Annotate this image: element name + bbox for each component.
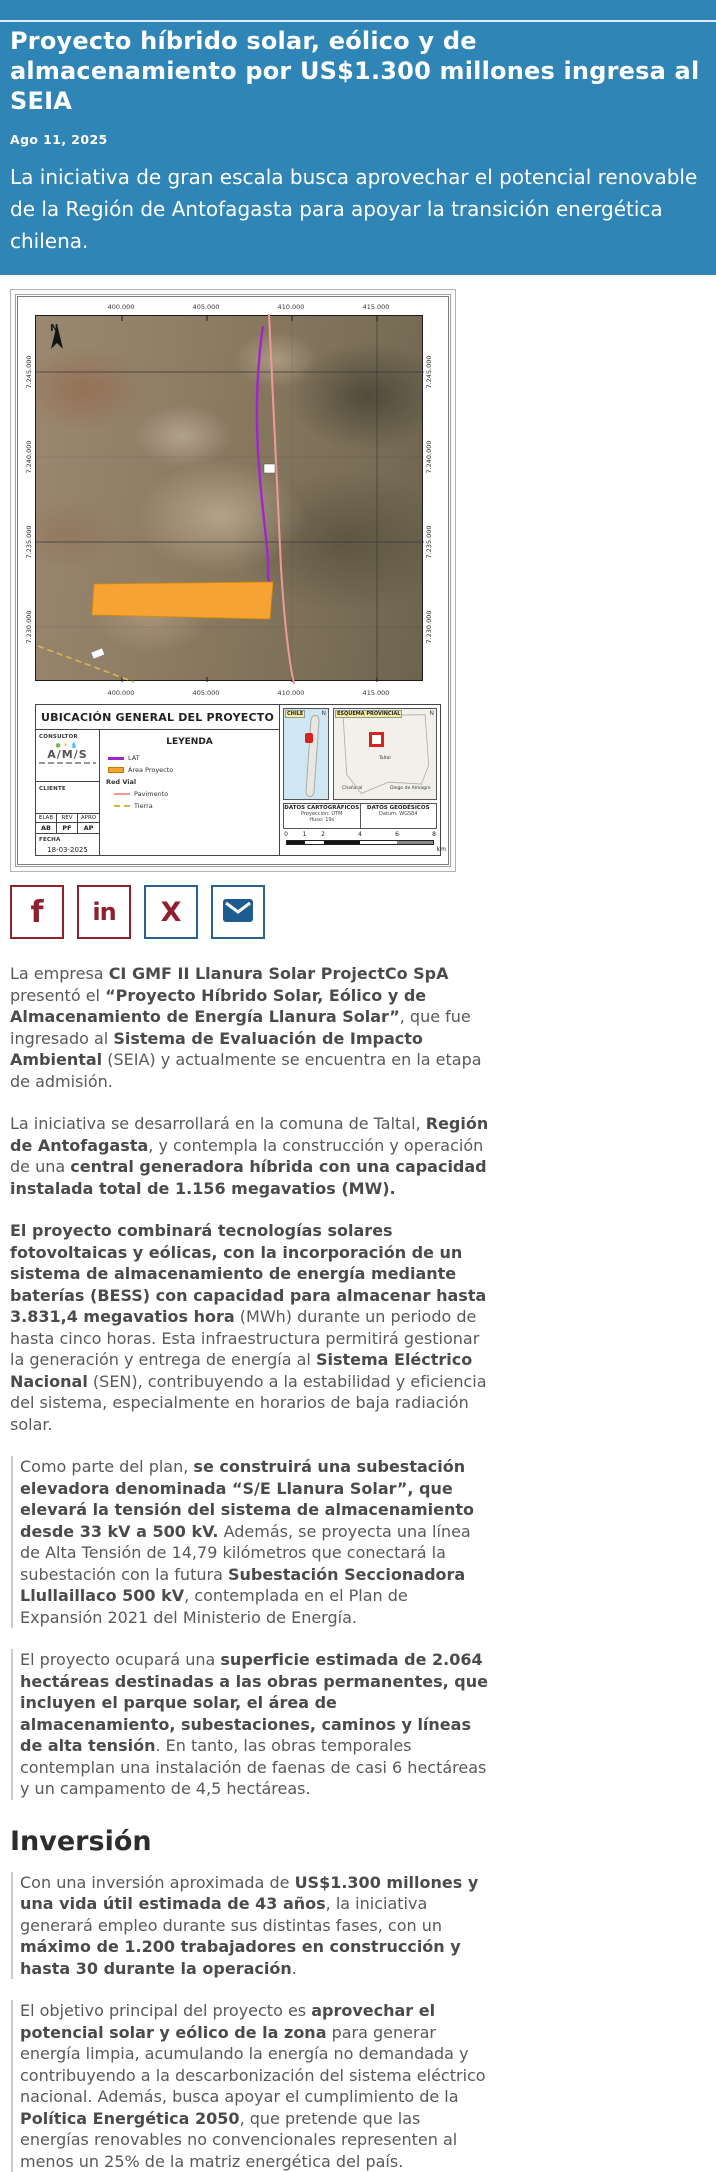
header-divider bbox=[0, 20, 716, 22]
coord-label: 410.000 bbox=[278, 689, 305, 697]
article-paragraph: Con una inversión aproximada de US$1.300… bbox=[11, 1872, 493, 1980]
share-buttons-row: f in X bbox=[10, 885, 716, 939]
map-x-coordinates-bottom: 400.000 405.000 410.000 415.000 bbox=[35, 689, 423, 699]
legend-title: LEYENDA bbox=[106, 737, 273, 747]
approval-header: APRO bbox=[78, 814, 99, 823]
email-icon bbox=[222, 898, 254, 926]
article-section: Con una inversión aproximada de US$1.300… bbox=[10, 1872, 500, 2172]
chile-silhouette bbox=[305, 715, 320, 797]
chile-inset-label: CHILE bbox=[285, 710, 305, 718]
project-location-map: 400.000 405.000 410.000 415.000 bbox=[10, 289, 456, 872]
project-area-polygon bbox=[92, 582, 273, 619]
legend-item-label: Pavimento bbox=[134, 790, 168, 798]
article-body: La empresa CI GMF II Llanura Solar Proje… bbox=[0, 963, 500, 2172]
scale-tick: 6 bbox=[395, 831, 399, 838]
coord-label: 7.245.000 bbox=[25, 355, 33, 388]
scale-tick: 1 bbox=[303, 831, 307, 838]
map-canvas: 400.000 405.000 410.000 415.000 bbox=[35, 303, 423, 701]
email-share-button[interactable] bbox=[211, 885, 265, 939]
page-title: Proyecto híbrido solar, eólico y de alma… bbox=[10, 26, 704, 116]
coord-label: 7.240.000 bbox=[425, 440, 433, 473]
pavimento-swatch bbox=[114, 793, 130, 795]
article-paragraph: El proyecto ocupará una superficie estim… bbox=[11, 1649, 493, 1800]
coord-label: 7.245.000 bbox=[425, 355, 433, 388]
map-data-panel: DATOS CARTOGRÁFICOS Proyección: UTM Huso… bbox=[283, 803, 437, 829]
article-header: Proyecto híbrido solar, eólico y de alma… bbox=[0, 0, 716, 275]
approvals-table: ELAB REV APRO AB PF AP bbox=[36, 814, 99, 834]
scale-unit: km bbox=[437, 846, 446, 853]
scale-tick: 8 bbox=[432, 831, 436, 838]
article-lede: La iniciativa de gran escala busca aprov… bbox=[10, 161, 704, 257]
x-icon: X bbox=[161, 897, 182, 928]
coord-label: 400.000 bbox=[108, 303, 135, 311]
linkedin-icon: in bbox=[92, 898, 115, 926]
approval-header: REV bbox=[57, 814, 78, 823]
huso-label: Huso: 19s bbox=[284, 817, 360, 823]
approval-header: ELAB bbox=[36, 814, 57, 823]
road-tierra-line bbox=[38, 646, 134, 682]
approval-value: PF bbox=[57, 823, 78, 833]
coord-label: 405.000 bbox=[193, 689, 220, 697]
coord-label: 415.000 bbox=[363, 303, 390, 311]
article-paragraph: Como parte del plan, se construirá una s… bbox=[11, 1456, 493, 1628]
article-paragraph: El proyecto combinará tecnologías solare… bbox=[10, 1220, 492, 1435]
provincial-inset-map: ESQUEMA PROVINCIAL N Taltal Chañaral Die… bbox=[333, 708, 437, 800]
datum-label: Datum: WGS84 bbox=[361, 811, 437, 817]
map-linework bbox=[36, 316, 424, 682]
coord-label: 410.000 bbox=[278, 303, 305, 311]
road-pavimento-line bbox=[269, 314, 294, 684]
fecha-label: FECHA bbox=[39, 837, 60, 843]
article-date: Ago 11, 2025 bbox=[10, 132, 704, 147]
coord-label: 7.235.000 bbox=[25, 525, 33, 558]
article-paragraph: La iniciativa se desarrollará en la comu… bbox=[10, 1113, 492, 1199]
consultor-name: A/M/S bbox=[39, 749, 96, 760]
chile-inset-map: CHILE N bbox=[283, 708, 329, 800]
map-title: UBICACIÓN GENERAL DEL PROYECTO bbox=[36, 705, 279, 730]
fecha-value: 18-03-2025 bbox=[39, 846, 96, 854]
cliente-label: CLIENTE bbox=[39, 786, 66, 792]
region-marker bbox=[305, 733, 313, 743]
map-x-coordinates-top: 400.000 405.000 410.000 415.000 bbox=[35, 303, 423, 313]
legend-item-label: Red Vial bbox=[106, 778, 136, 786]
x-share-button[interactable]: X bbox=[144, 885, 198, 939]
consultor-label: CONSULTOR bbox=[39, 734, 78, 740]
map-inner-frame: 400.000 405.000 410.000 415.000 bbox=[17, 296, 449, 865]
satellite-image: N 7.245.000 7.240.000 7.235.000 7.230.00… bbox=[35, 315, 423, 681]
coord-label: 7.230.000 bbox=[25, 610, 33, 643]
lat-swatch bbox=[108, 757, 124, 760]
scale-tick: 4 bbox=[358, 831, 362, 838]
coord-label: 405.000 bbox=[193, 303, 220, 311]
coord-label: 7.240.000 bbox=[25, 440, 33, 473]
map-title-block: UBICACIÓN GENERAL DEL PROYECTO CONSULTOR… bbox=[35, 704, 441, 856]
facebook-icon: f bbox=[30, 895, 43, 930]
article-paragraph: El objetivo principal del proyecto es ap… bbox=[11, 2000, 493, 2172]
linkedin-share-button[interactable]: in bbox=[77, 885, 131, 939]
article-paragraph: La empresa CI GMF II Llanura Solar Proje… bbox=[10, 963, 492, 1092]
map-legend: LEYENDA LAT Área Proyecto Red Vial Pavim… bbox=[100, 730, 279, 855]
area-proyecto-swatch bbox=[108, 767, 124, 773]
article-section: La empresa CI GMF II Llanura Solar Proje… bbox=[10, 963, 500, 1800]
north-indicator: N bbox=[322, 710, 327, 717]
facebook-share-button[interactable]: f bbox=[10, 885, 64, 939]
scale-tick: 2 bbox=[321, 831, 325, 838]
scale-tick: 0 bbox=[284, 831, 288, 838]
tierra-swatch bbox=[114, 805, 130, 807]
legend-item-label: LAT bbox=[128, 754, 140, 762]
coord-label: 7.235.000 bbox=[425, 525, 433, 558]
legend-item-label: Tierra bbox=[134, 802, 153, 810]
esquema-inset-label: ESQUEMA PROVINCIAL bbox=[335, 710, 402, 718]
coord-label: 400.000 bbox=[108, 689, 135, 697]
section-heading-inversion: Inversión bbox=[10, 1826, 500, 1857]
approval-value: AB bbox=[36, 823, 57, 833]
approval-value: AP bbox=[78, 823, 99, 833]
consultor-logo: ●☀💧 A/M/S bbox=[39, 743, 96, 764]
coord-label: 415.000 bbox=[363, 689, 390, 697]
legend-item-label: Área Proyecto bbox=[128, 766, 173, 774]
coord-label: 7.230.000 bbox=[425, 610, 433, 643]
north-arrow: N bbox=[50, 324, 58, 333]
map-scale-bar: 0 1 2 4 6 8 km bbox=[286, 831, 434, 853]
